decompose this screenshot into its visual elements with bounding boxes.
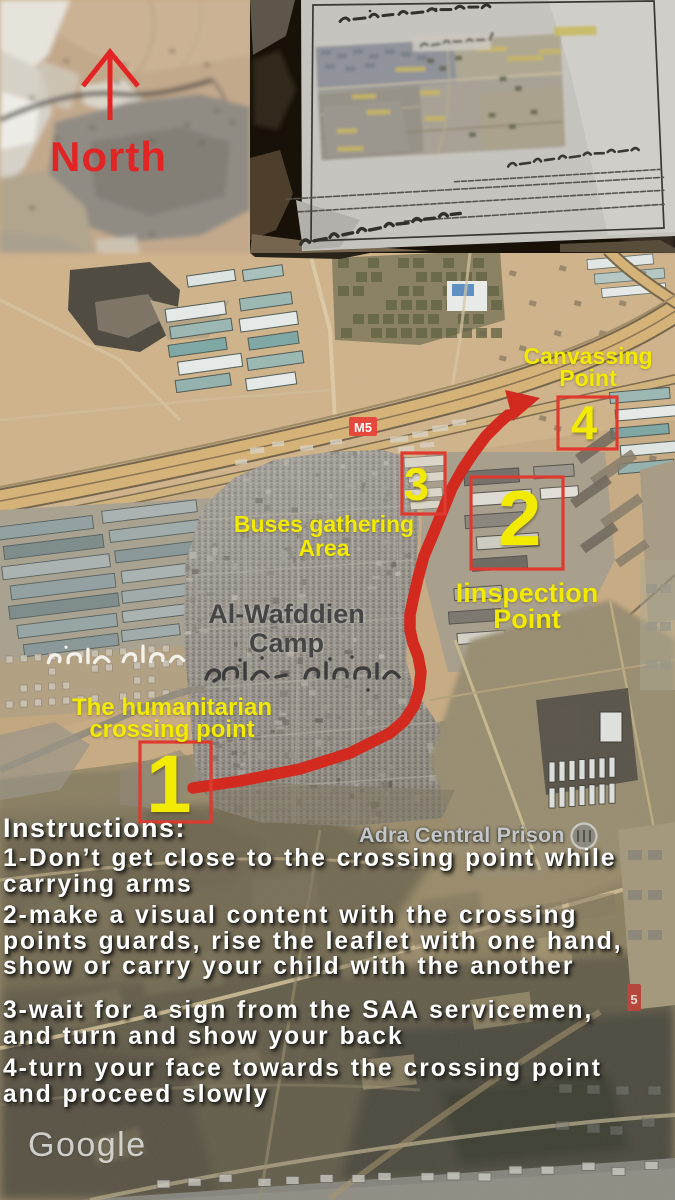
svg-text:North: North: [50, 133, 167, 180]
svg-text:M5: M5: [354, 420, 372, 435]
